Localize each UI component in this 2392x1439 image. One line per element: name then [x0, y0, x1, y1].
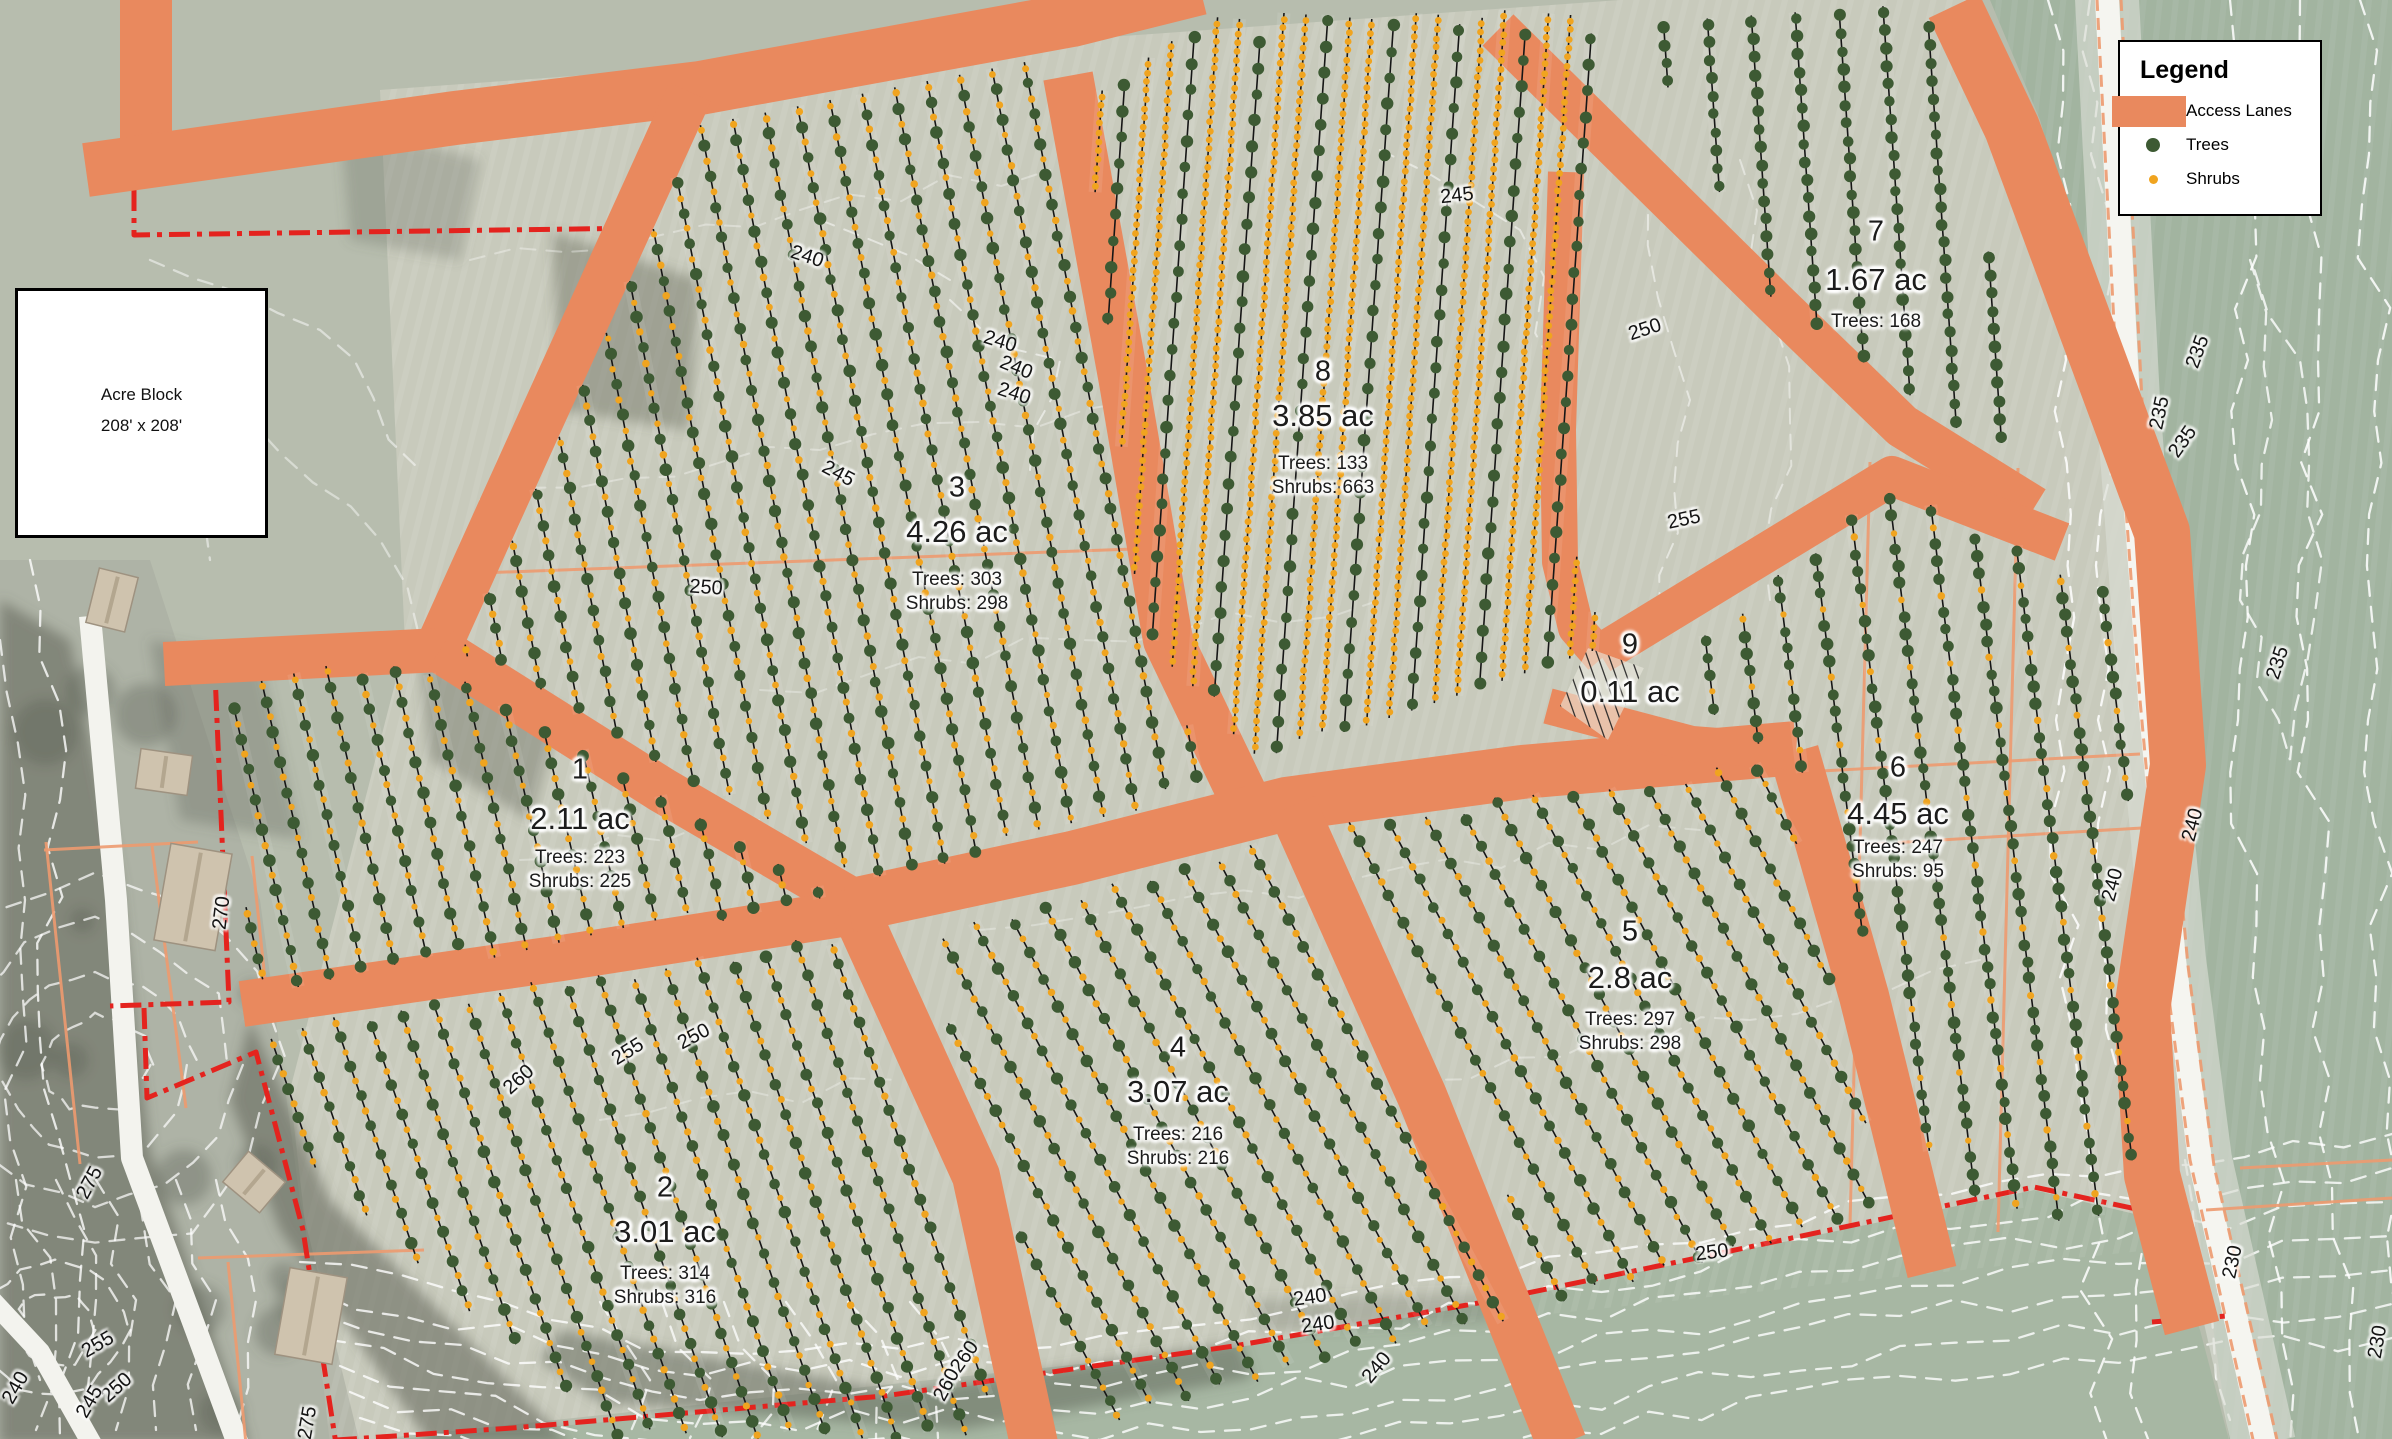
map-canvas — [0, 0, 2392, 1439]
planting-plan-map: 12.11 acTrees: 223Shrubs: 22523.01 acTre… — [0, 0, 2392, 1439]
